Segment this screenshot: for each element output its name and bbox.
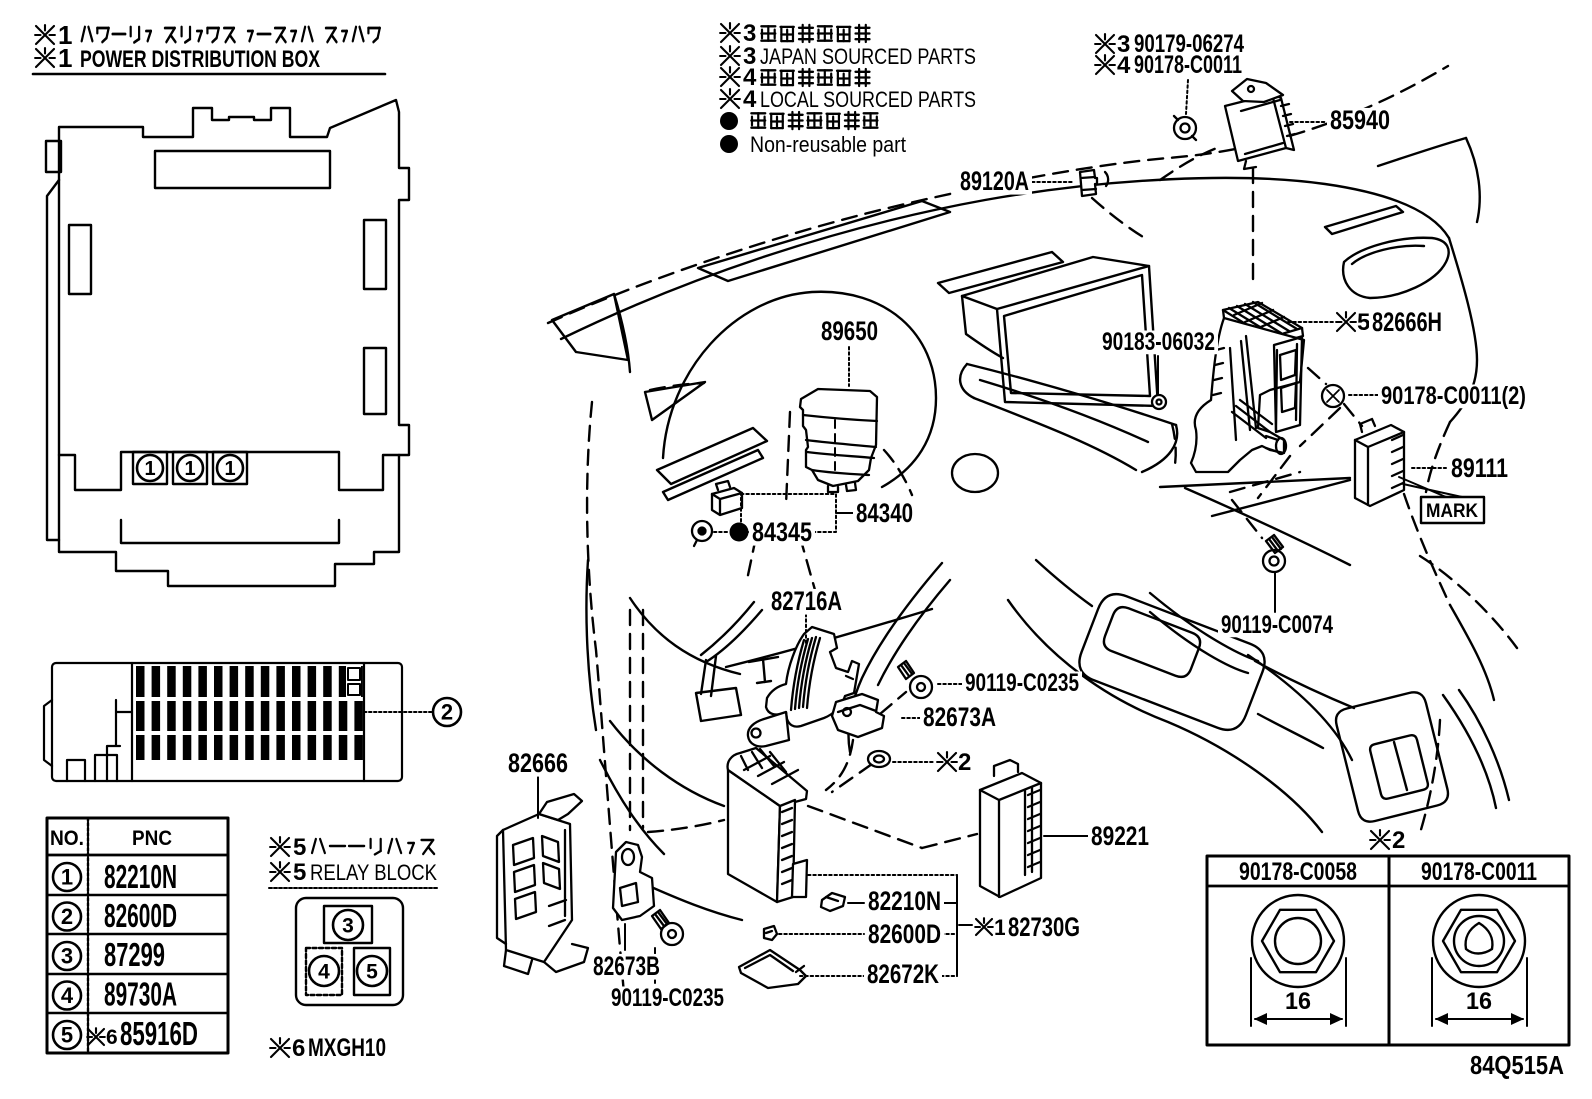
svg-text:5: 5 bbox=[1357, 309, 1370, 336]
svg-text:1: 1 bbox=[224, 458, 235, 480]
svg-text:6: 6 bbox=[106, 1026, 118, 1049]
svg-text:MARK: MARK bbox=[1426, 501, 1478, 522]
svg-text:MXGH10: MXGH10 bbox=[308, 1034, 386, 1062]
svg-text:90178-C0011: 90178-C0011 bbox=[1421, 858, 1537, 886]
svg-text:2: 2 bbox=[1392, 827, 1405, 854]
svg-text:85916D: 85916D bbox=[120, 1015, 198, 1052]
svg-text:82672K: 82672K bbox=[867, 959, 939, 989]
svg-text:82673B: 82673B bbox=[593, 951, 660, 981]
svg-text:1: 1 bbox=[184, 458, 195, 480]
svg-text:3: 3 bbox=[342, 914, 354, 937]
svg-text:82600D: 82600D bbox=[104, 897, 177, 934]
svg-text:1: 1 bbox=[144, 458, 155, 480]
svg-text:90178-C0058: 90178-C0058 bbox=[1239, 858, 1357, 886]
svg-text:5: 5 bbox=[61, 1023, 73, 1048]
svg-text:4: 4 bbox=[743, 86, 757, 113]
svg-text:90119-C0235: 90119-C0235 bbox=[611, 984, 724, 1012]
svg-text:LOCAL SOURCED PARTS: LOCAL SOURCED PARTS bbox=[760, 87, 976, 112]
svg-text:89730A: 89730A bbox=[104, 976, 177, 1013]
svg-text:3: 3 bbox=[61, 944, 73, 969]
svg-text:1: 1 bbox=[58, 43, 72, 73]
svg-text:1: 1 bbox=[61, 865, 73, 890]
svg-text:POWER DISTRIBUTION BOX: POWER DISTRIBUTION BOX bbox=[80, 46, 320, 73]
svg-text:82210N: 82210N bbox=[104, 858, 177, 895]
svg-text:84340: 84340 bbox=[856, 498, 913, 528]
svg-text:16: 16 bbox=[1285, 988, 1311, 1015]
svg-text:16: 16 bbox=[1466, 988, 1492, 1015]
svg-text:89120A: 89120A bbox=[960, 166, 1029, 196]
svg-text:NO.: NO. bbox=[50, 827, 84, 850]
svg-text:RELAY BLOCK: RELAY BLOCK bbox=[310, 860, 437, 885]
svg-text:87299: 87299 bbox=[104, 936, 165, 973]
svg-text:6: 6 bbox=[292, 1035, 305, 1062]
svg-text:82716A: 82716A bbox=[771, 586, 842, 616]
svg-text:90119-C0074: 90119-C0074 bbox=[1221, 611, 1333, 639]
svg-text:82600D: 82600D bbox=[868, 919, 941, 949]
svg-text:5: 5 bbox=[366, 960, 378, 983]
svg-text:89221: 89221 bbox=[1091, 821, 1149, 851]
svg-text:PNC: PNC bbox=[132, 827, 172, 850]
svg-text:4: 4 bbox=[1117, 52, 1131, 79]
svg-text:2: 2 bbox=[441, 700, 453, 725]
svg-text:89650: 89650 bbox=[821, 316, 878, 346]
svg-text:90183-06032: 90183-06032 bbox=[1102, 328, 1215, 356]
svg-text:82210N: 82210N bbox=[868, 886, 941, 916]
svg-text:1: 1 bbox=[994, 915, 1006, 940]
svg-text:5: 5 bbox=[293, 834, 306, 861]
svg-text:2: 2 bbox=[61, 904, 73, 929]
svg-text:2: 2 bbox=[958, 749, 971, 776]
svg-text:85940: 85940 bbox=[1330, 105, 1390, 135]
svg-text:84Q515A: 84Q515A bbox=[1470, 1050, 1564, 1080]
svg-text:90119-C0235: 90119-C0235 bbox=[965, 669, 1079, 697]
svg-text:84345: 84345 bbox=[752, 517, 812, 547]
svg-text:90178-C0011(2): 90178-C0011(2) bbox=[1381, 382, 1526, 410]
svg-text:Non-reusable part: Non-reusable part bbox=[750, 132, 906, 157]
svg-text:82666H: 82666H bbox=[1372, 307, 1442, 337]
svg-text:90178-C0011: 90178-C0011 bbox=[1134, 51, 1242, 79]
svg-text:89111: 89111 bbox=[1451, 453, 1508, 483]
svg-text:JAPAN SOURCED PARTS: JAPAN SOURCED PARTS bbox=[760, 44, 976, 69]
svg-text:4: 4 bbox=[61, 983, 74, 1008]
svg-text:82666: 82666 bbox=[508, 748, 568, 778]
svg-text:82730G: 82730G bbox=[1008, 912, 1080, 942]
svg-text:82673A: 82673A bbox=[923, 702, 996, 732]
svg-text:4: 4 bbox=[318, 960, 330, 983]
svg-text:5: 5 bbox=[293, 859, 306, 886]
